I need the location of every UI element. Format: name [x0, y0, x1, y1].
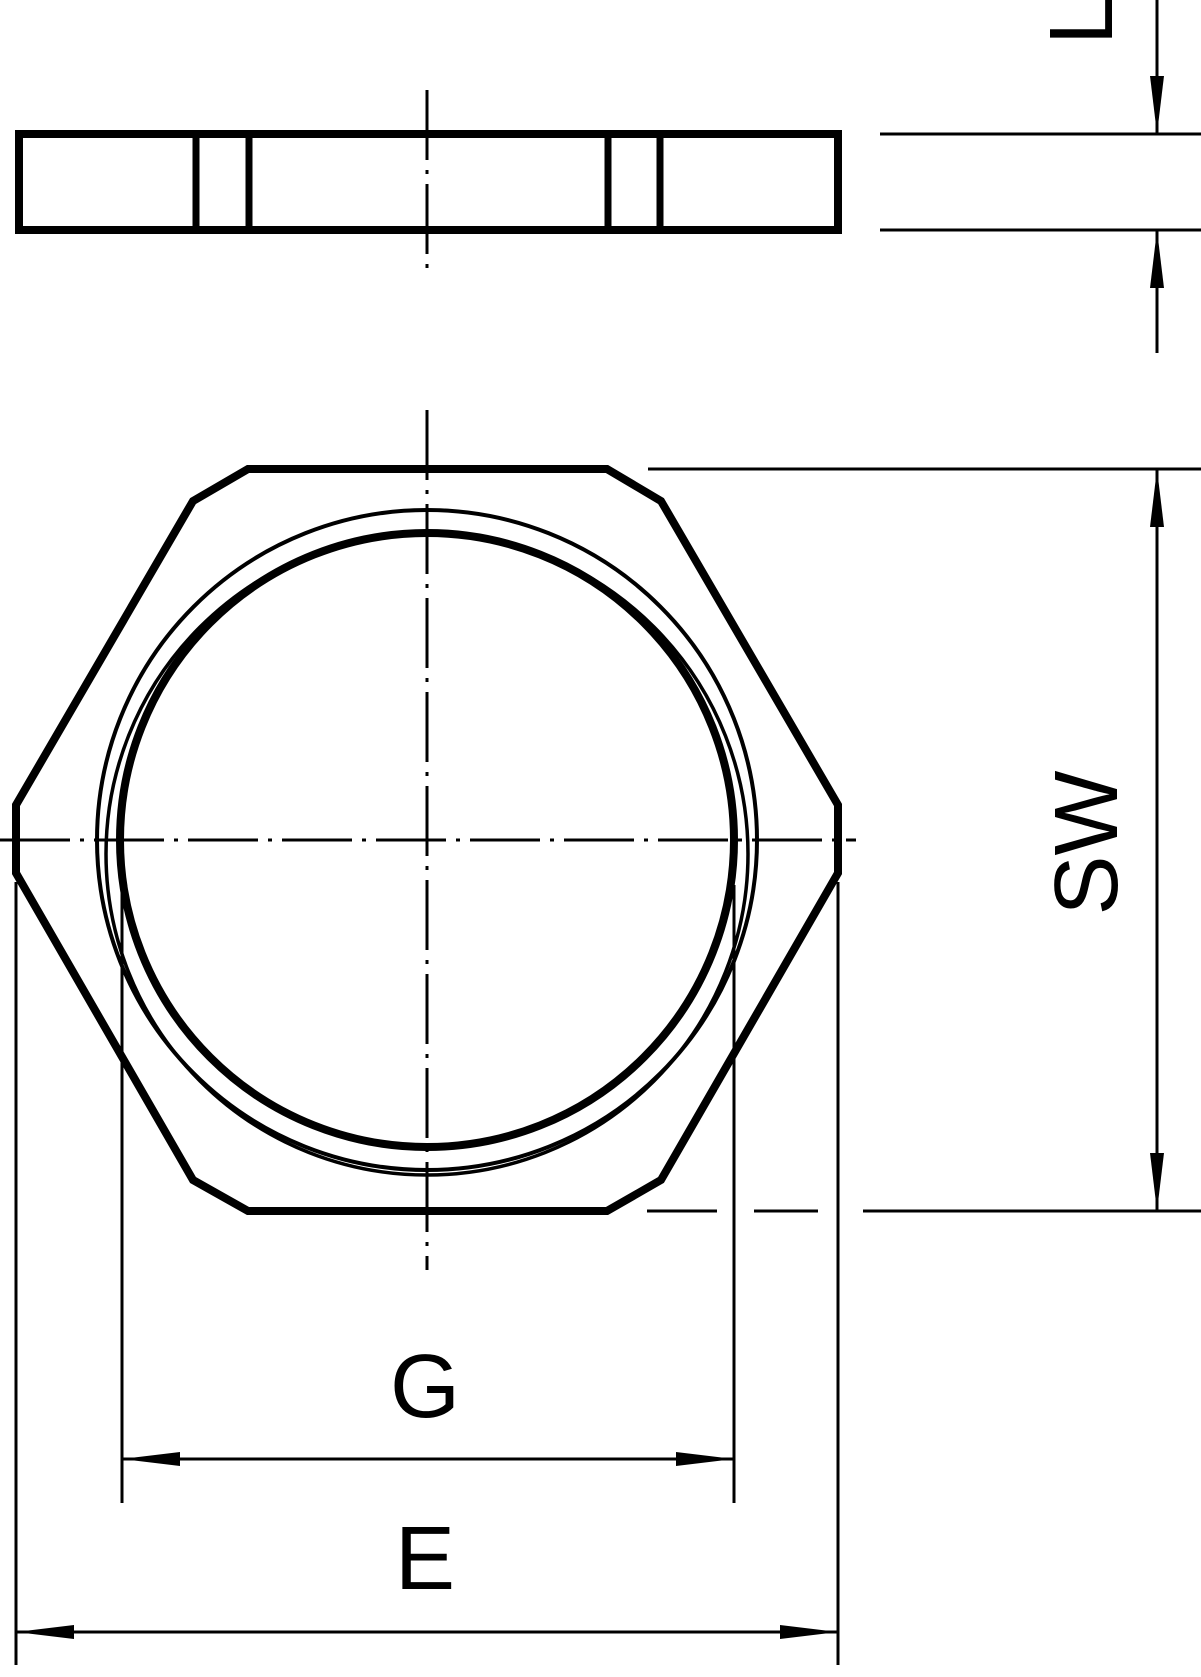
- SW-arrowhead-up-icon: [1150, 469, 1164, 527]
- G-arrowhead-left-icon: [122, 1452, 180, 1466]
- front-view: [0, 410, 856, 1270]
- G-arrowhead-right-icon: [676, 1452, 734, 1466]
- label-E: E: [395, 1509, 455, 1609]
- label-SW: SW: [1037, 770, 1137, 915]
- E-arrowhead-right-icon: [780, 1625, 838, 1639]
- L-arrowhead-up-icon: [1150, 230, 1164, 288]
- label-L: L: [1032, 0, 1132, 45]
- L-arrowhead-down-icon: [1150, 76, 1164, 134]
- label-G: G: [390, 1337, 460, 1437]
- locknut-technical-drawing: L SW G E: [0, 0, 1201, 1677]
- E-arrowhead-left-icon: [16, 1625, 74, 1639]
- technical-drawing-page: L SW G E: [0, 0, 1201, 1677]
- side-view: [19, 90, 838, 275]
- dimension-L: L: [880, 0, 1201, 353]
- SW-arrowhead-down-icon: [1150, 1153, 1164, 1211]
